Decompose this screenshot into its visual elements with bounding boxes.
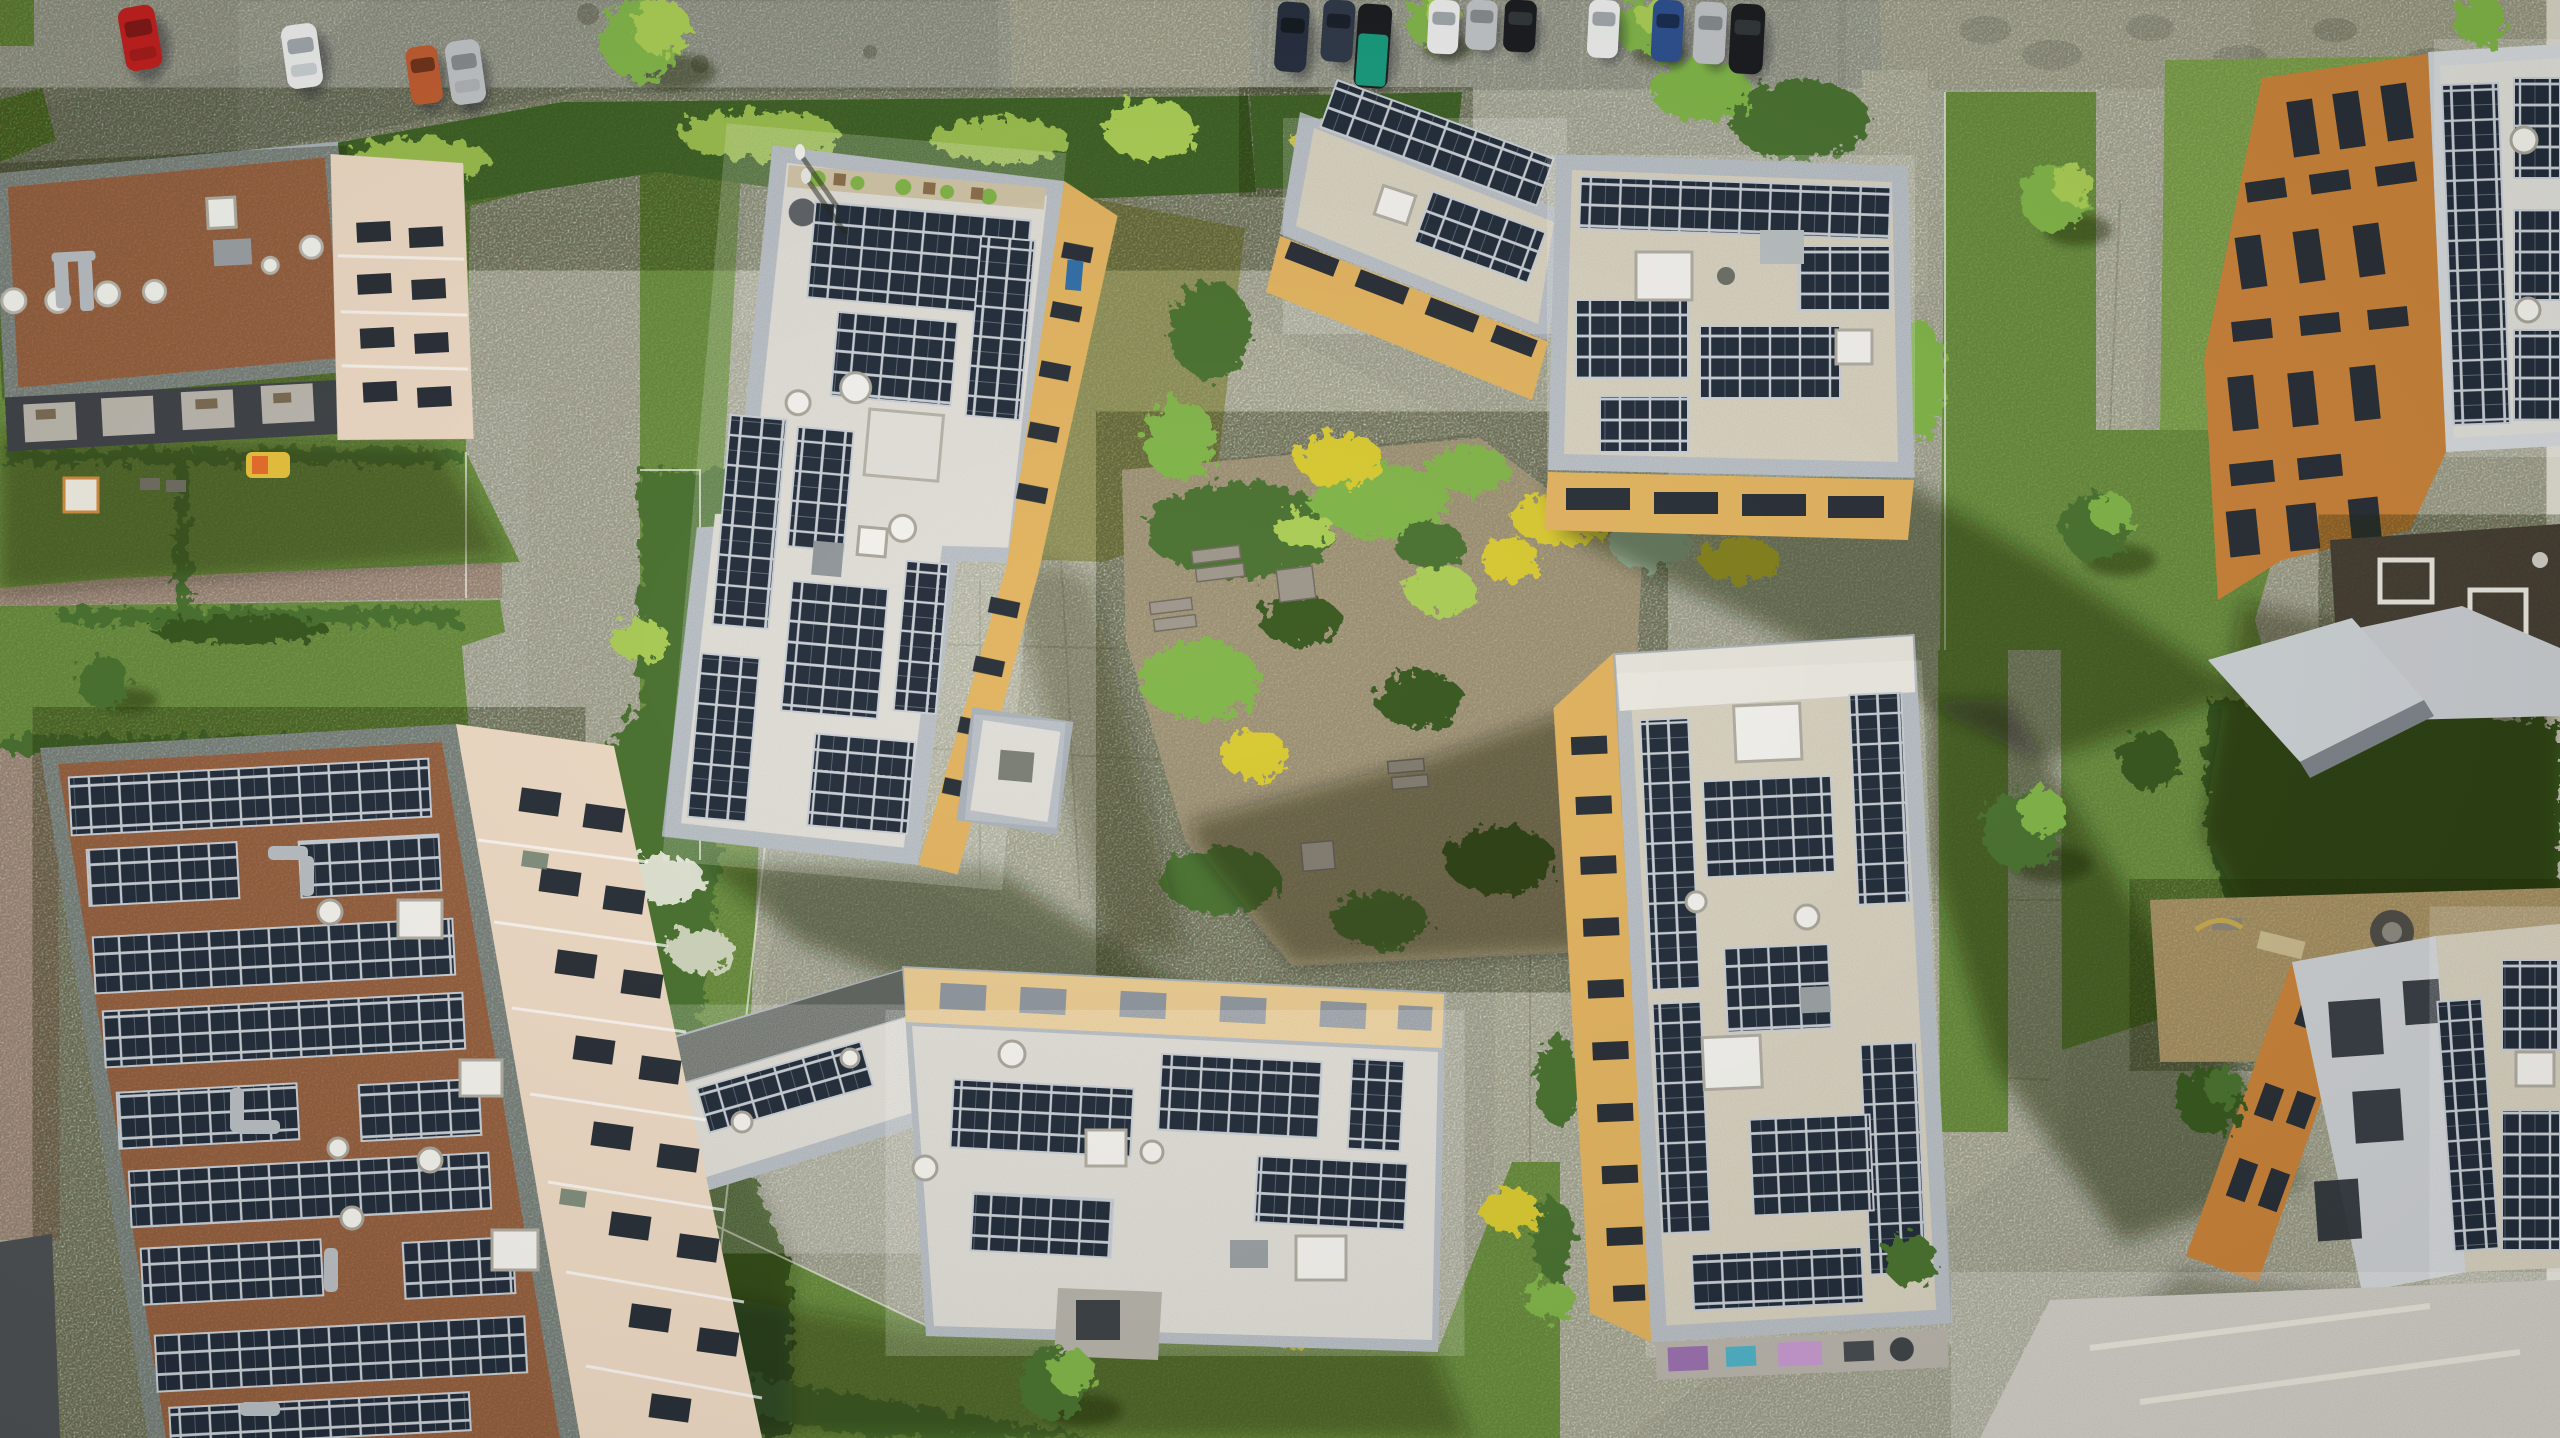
sandbox (64, 478, 98, 512)
car-black-tarp (1353, 3, 1393, 89)
car-black-3 (1728, 3, 1766, 75)
dark-roof-corner (0, 1234, 60, 1438)
east-facade (323, 147, 478, 446)
car-navy-1 (1274, 1, 1311, 73)
hvac-box (213, 238, 252, 266)
tree (1884, 1234, 1936, 1286)
car-white-2 (1427, 0, 1461, 55)
aerial-photo (0, 0, 2560, 1438)
building-northwest-block (0, 135, 478, 463)
gravel-strip (1010, 0, 1250, 96)
car-navy-2 (1320, 0, 1356, 63)
annex-roof (956, 707, 1074, 836)
grass-corner (0, 0, 34, 46)
skylight (207, 197, 237, 228)
blue-awning (1065, 260, 1084, 291)
car-black-2 (1503, 0, 1538, 53)
pink-path-west (0, 746, 60, 1240)
tree (2120, 730, 2180, 790)
aerial-photo-stage (0, 0, 2560, 1438)
car-blue (1650, 0, 1684, 63)
tree (2176, 1066, 2244, 1134)
car-silver-3 (1692, 1, 1727, 65)
tree (78, 656, 130, 708)
entrance-recess (1054, 1288, 1162, 1360)
building-far-east-upper (2204, 44, 2560, 778)
skylight (2516, 1052, 2554, 1086)
car-white-3 (1586, 0, 1620, 59)
car-silver-2 (1465, 0, 1499, 51)
